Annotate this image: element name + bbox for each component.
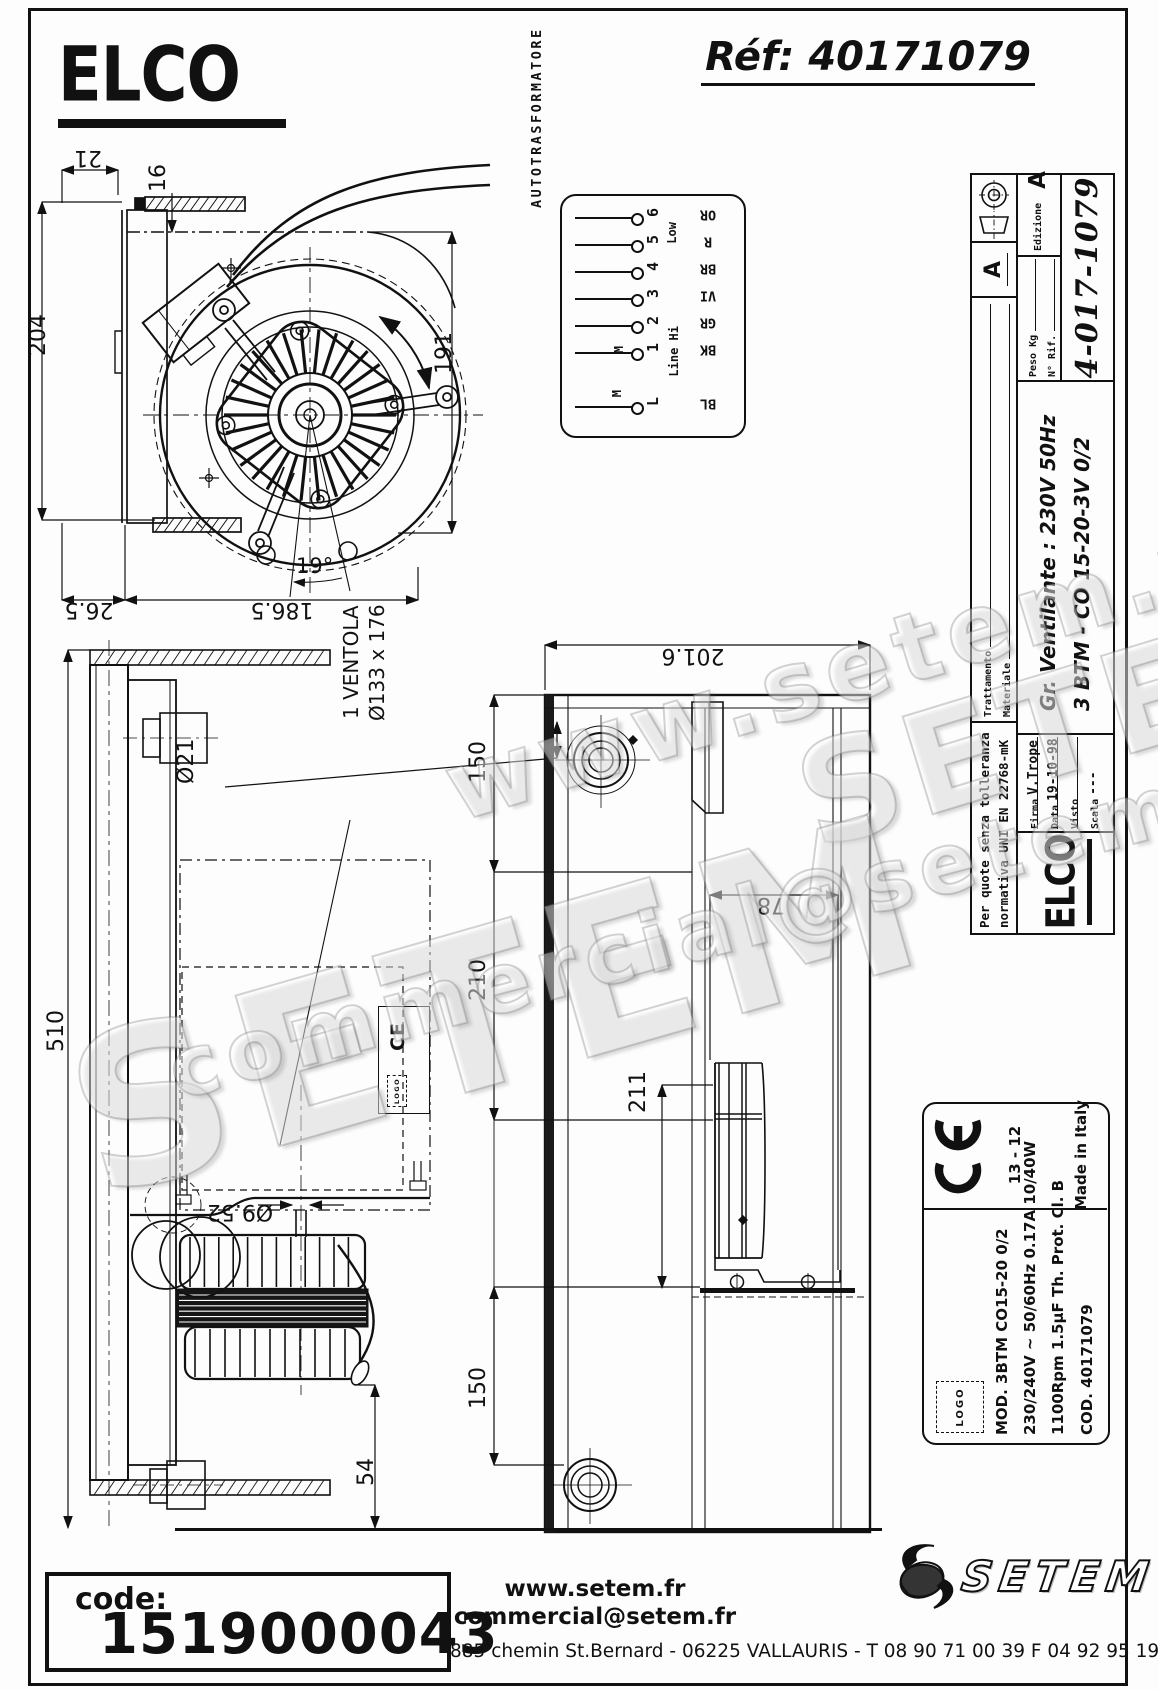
group-line: Gr. Ventilante : 230V 50Hz <box>1036 382 1060 711</box>
dim-26-5: 26.5 <box>58 598 120 620</box>
sticker-ce-mark: CE <box>387 1022 409 1051</box>
wire-color-OR: OR <box>690 207 726 221</box>
dim-211: 211 <box>628 1088 653 1144</box>
firma-value: V.Trope <box>1026 740 1041 795</box>
terminal-label-1: 1 <box>646 343 655 363</box>
terminal-2-icon <box>631 321 644 334</box>
ground-line <box>175 1528 882 1531</box>
wire-3 <box>575 298 632 300</box>
materiale-line <box>1008 304 1010 659</box>
peso-line <box>1034 259 1036 331</box>
tolerance-note-line1: Per quote senza tolleranza <box>975 732 994 928</box>
drawing-number: 4-017-1079 <box>1070 177 1105 379</box>
footer-address: 885 chemin St.Bernard - 06225 VALLAURIS … <box>450 1641 1120 1662</box>
terminal-L-icon <box>631 402 644 415</box>
wire-color-BR: BR <box>690 261 726 275</box>
data-value: 19-10-98 <box>1046 738 1061 801</box>
label-ventola-line2: Ø133 x 176 <box>367 698 390 816</box>
autotransformer-title: AUTOTRASFORMATORE <box>531 188 551 438</box>
edizione-value: A <box>1025 171 1051 189</box>
dim-210: 210 <box>468 976 493 1032</box>
setem-swoosh-icon <box>888 1538 966 1626</box>
tolerance-note: Per quote senza tolleranza normativa UNI… <box>975 732 1014 928</box>
title-block-elco-logo: ELCO <box>1018 833 1111 931</box>
label-motor-line: 1100Rpm 1.5µF Th. Prot. Cl. B <box>1044 1141 1072 1435</box>
dim-201-6: 201.6 <box>648 644 738 666</box>
code-value: 1519000043 <box>99 1602 439 1667</box>
label-logo-placeholder: LOGO <box>936 1381 984 1433</box>
wire-color-VI: VI <box>690 288 726 302</box>
title-block-elco-bar <box>1087 839 1092 925</box>
reference-header: Réf: 40171079 <box>0 34 1035 86</box>
trattamento-label: Trattamento <box>983 651 994 717</box>
peso-label: Peso Kg <box>1028 335 1039 377</box>
dim-150-top: 150 <box>468 758 493 804</box>
dim-191: 191 <box>434 350 458 426</box>
scala-value: --- <box>1086 771 1101 794</box>
title-block: Per quote senza tolleranza normativa UNI… <box>970 177 1111 935</box>
dim-21: 21 <box>62 146 114 168</box>
ce-mark-icon <box>932 1114 984 1200</box>
wire-5 <box>575 244 632 246</box>
terminal-6-icon <box>631 213 644 226</box>
title-block-elco-text: ELCO <box>1038 835 1085 930</box>
data-label: Data <box>1050 805 1061 829</box>
firma-label: Firma <box>1030 799 1041 829</box>
materiale-label: Materiale <box>1002 663 1013 717</box>
trattamento-line <box>989 304 991 647</box>
sticker-logo-placeholder: LOGO <box>387 1075 407 1107</box>
elco-logo-bar <box>58 119 286 128</box>
outlet-view-drawing <box>470 630 890 1540</box>
wire-6 <box>575 217 632 219</box>
product-label: LOGO MOD. 3BTM CO15-20 0/2 230/240V ~ 50… <box>922 1102 1110 1445</box>
setem-logo <box>888 1538 966 1630</box>
revision-marker: A <box>981 253 1008 286</box>
dim-diameter-9-52: Ø9.52 <box>200 1200 280 1222</box>
terminal-1-icon <box>631 348 644 361</box>
dim-186-5: 186.5 <box>238 598 326 620</box>
label-ventola-line1: 1 VENTOLA <box>341 696 364 818</box>
unit-sticker: LOGO CE <box>378 1006 430 1114</box>
label-line-hi: Line Hi <box>668 326 719 392</box>
model-line: 3 BTM - CO 15-20-3V 0/2 <box>1070 382 1094 711</box>
rif-line <box>1053 259 1055 331</box>
dim-19deg: 19° <box>296 556 333 577</box>
terminal-label-2: 2 <box>646 316 655 336</box>
rif-label: N° Rif. <box>1047 335 1058 377</box>
tolerance-note-line2: normativa UNI EN 22768-mK <box>994 732 1013 928</box>
footer-email: commercial@setem.fr <box>430 1604 760 1630</box>
label-made-in: Made in Italy <box>1072 1100 1090 1210</box>
terminal-3-icon <box>631 294 644 307</box>
wire-4 <box>575 271 632 273</box>
terminal-label-L: L <box>646 397 655 417</box>
wire-color-R: R <box>690 234 726 248</box>
setem-logo-text: SETEM <box>959 1552 1158 1601</box>
terminal-label-5: 5 <box>646 235 655 255</box>
reference-number: Réf: 40171079 <box>701 34 1035 86</box>
dim-diameter-21: Ø21 <box>176 760 200 820</box>
terminal-5-icon <box>631 240 644 253</box>
terminal-4-icon <box>631 267 644 280</box>
scala-label: Scala <box>1090 799 1101 829</box>
label-m1: M <box>613 346 620 364</box>
footer-website: www.setem.fr <box>460 1576 730 1602</box>
wire-2 <box>575 325 632 327</box>
code-box: code: 1519000043 <box>45 1572 451 1672</box>
projection-symbol-icon <box>972 175 1016 241</box>
wire-color-BL: BL <box>690 396 726 410</box>
dim-16: 16 <box>148 168 172 212</box>
terminal-label-3: 3 <box>646 289 655 309</box>
dim-78: 78 <box>746 893 796 915</box>
label-date-code: 13 - 12 <box>1006 1100 1024 1210</box>
datasheet-page: ELCO Réf: 40171079 <box>0 0 1158 1690</box>
dim-54: 54 <box>356 1462 380 1510</box>
label-low: Low <box>666 222 688 268</box>
terminal-label-6: 6 <box>646 208 655 228</box>
visto-label: Visto <box>1070 799 1081 829</box>
terminal-label-4: 4 <box>646 262 655 282</box>
dim-204: 204 <box>28 332 52 408</box>
edizione-label: Edizione <box>1033 203 1044 251</box>
dim-510: 510 <box>46 1026 72 1110</box>
dim-150-bottom: 150 <box>468 1384 493 1432</box>
wire-L <box>575 406 632 408</box>
label-m2: M <box>611 390 618 408</box>
